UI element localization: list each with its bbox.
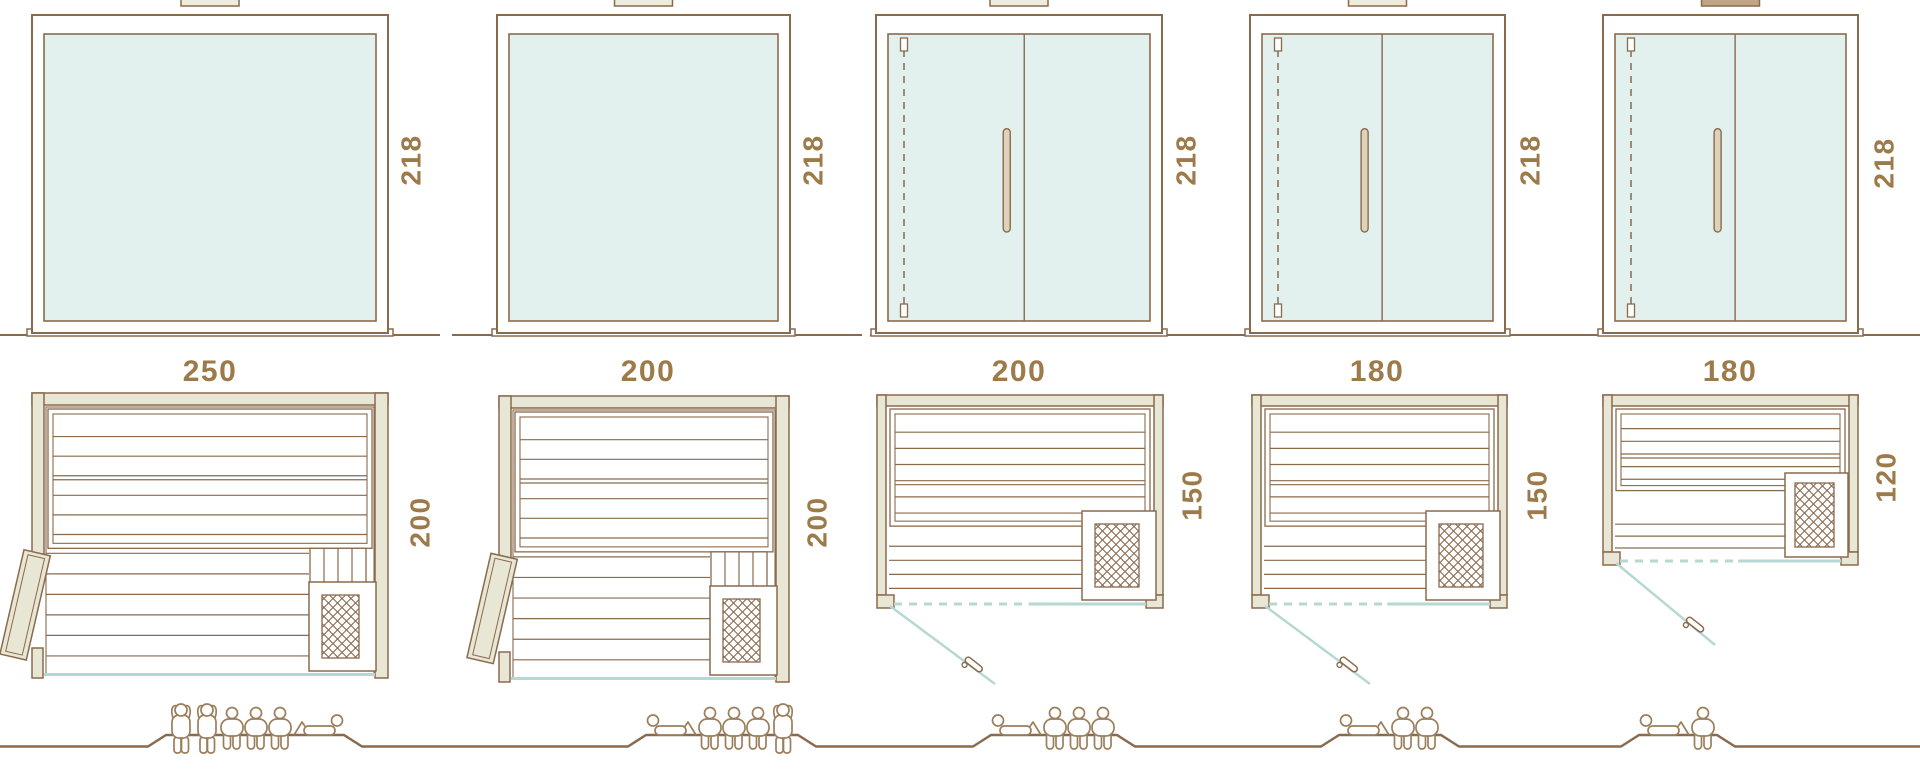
- wall-top: [877, 395, 1163, 406]
- glass-panel: [1615, 34, 1846, 321]
- wall-top: [32, 393, 388, 405]
- unit-1-elevation: [27, 0, 393, 336]
- unit-1-width-dimension: 250: [183, 355, 238, 388]
- upper-bench: [890, 409, 1150, 526]
- hinge-icon: [1628, 304, 1635, 317]
- unit-1-height-dimension: 218: [396, 134, 427, 185]
- wall-top: [1252, 395, 1507, 406]
- glass-panel: [1262, 34, 1493, 321]
- roof-tab-icon: [990, 0, 1048, 6]
- unit-4-floor-plan: [1252, 395, 1507, 684]
- unit-1-depth-dimension: 200: [405, 496, 436, 547]
- upper-bench: [1265, 409, 1494, 526]
- wall-stub: [32, 648, 43, 678]
- roof-tab-icon: [615, 0, 673, 6]
- hinge-icon: [901, 304, 908, 317]
- unit-2-floor-plan: [467, 396, 789, 682]
- wall-right: [776, 396, 789, 682]
- glass-panel: [509, 34, 778, 321]
- unit-4-depth-dimension: 150: [1522, 469, 1553, 520]
- unit-3-capacity-figures: [993, 708, 1115, 750]
- unit-3-height-dimension: 218: [1171, 134, 1202, 185]
- door-leaf-icon: [0, 550, 50, 660]
- unit-5-depth-dimension: 120: [1871, 451, 1902, 502]
- unit-4-width-dimension: 180: [1350, 355, 1405, 388]
- hinge-icon: [1275, 38, 1282, 51]
- glass-panel: [44, 34, 376, 321]
- roof-tab-icon: [181, 0, 239, 6]
- unit-5-height-dimension: 218: [1869, 137, 1900, 188]
- unit-3-floor-plan: [877, 395, 1163, 684]
- wall-left: [499, 396, 511, 558]
- unit-5-capacity-figures: [1641, 708, 1715, 750]
- wall-top: [499, 396, 789, 408]
- unit-3-depth-dimension: 150: [1177, 469, 1208, 520]
- wall-left: [1252, 395, 1261, 595]
- unit-2-capacity-figures: [648, 704, 793, 753]
- diagram-canvas: 218 218 218 218 218 250 200 200 180 180 …: [0, 0, 1920, 770]
- wall-stub: [499, 652, 510, 682]
- unit-2-width-dimension: 200: [621, 355, 676, 388]
- door-handle-icon: [1361, 129, 1368, 232]
- sauna-sizes-diagram: 218 218 218 218 218 250 200 200 180 180 …: [0, 0, 1920, 770]
- wall-left: [1603, 395, 1612, 552]
- hinge-icon: [1275, 304, 1282, 317]
- unit-5-elevation: [1598, 0, 1863, 336]
- wall-left: [877, 395, 886, 595]
- glass-panel: [888, 34, 1150, 321]
- unit-2-height-dimension: 218: [798, 134, 829, 185]
- door-handle-icon: [1003, 129, 1010, 232]
- door-handle-icon: [1714, 129, 1721, 232]
- unit-3-width-dimension: 200: [992, 355, 1047, 388]
- unit-4-capacity-figures: [1341, 708, 1439, 750]
- roof-tab-icon: [1349, 0, 1407, 6]
- unit-1-capacity-figures: [172, 704, 343, 753]
- unit-1-floor-plan: [0, 393, 388, 678]
- hinge-icon: [901, 38, 908, 51]
- door-leaf-icon: [467, 553, 517, 663]
- unit-4-elevation: [1245, 0, 1510, 336]
- wall-top: [1603, 395, 1858, 406]
- unit-5-width-dimension: 180: [1703, 355, 1758, 388]
- upper-bench: [48, 409, 372, 548]
- unit-5-floor-plan: [1603, 395, 1858, 645]
- unit-2-elevation: [492, 0, 795, 336]
- roof-tab-icon: [1702, 0, 1760, 6]
- wall-left: [32, 393, 44, 554]
- wall-right: [1849, 395, 1858, 552]
- unit-2-depth-dimension: 200: [802, 496, 833, 547]
- upper-bench: [515, 412, 773, 552]
- hinge-icon: [1628, 38, 1635, 51]
- unit-4-height-dimension: 218: [1515, 134, 1546, 185]
- wall-right: [375, 393, 388, 678]
- unit-3-elevation: [871, 0, 1167, 336]
